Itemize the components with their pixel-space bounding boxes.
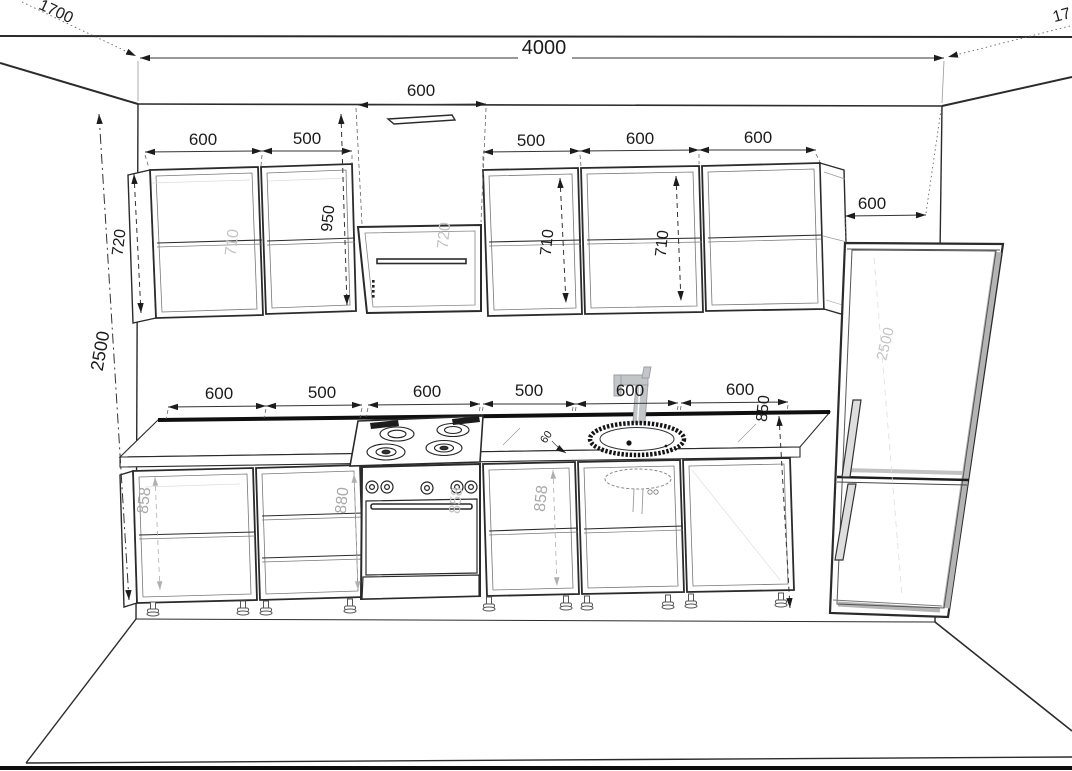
dim-label-hood-inner-ghost: 720 xyxy=(435,221,455,249)
dim-label-counter-height: 850 xyxy=(754,394,774,422)
dim-label-upper-right-inner-1: 710 xyxy=(538,228,558,256)
kitchen-elevation-drawing: 2500 xyxy=(0,0,1072,771)
hood-handle xyxy=(377,259,466,264)
dim-label-upper-right-inner-2: 710 xyxy=(653,229,673,257)
dim-label-hood-width: 600 xyxy=(407,81,435,100)
dim-label-base-inner-2: 880 xyxy=(333,486,353,514)
dim-label-upper-left-2: 500 xyxy=(293,129,321,148)
dim-label-upper-right-3: 600 xyxy=(744,128,772,147)
dim-label-base-inner-4: 858 xyxy=(532,484,552,512)
dim-label-hood-zone-height: 950 xyxy=(319,204,339,232)
dim-label-upper-right-2: 600 xyxy=(626,129,654,148)
dim-label-base-5: 600 xyxy=(616,381,644,400)
range-hood xyxy=(358,115,481,313)
dim-label-room-height: 2500 xyxy=(87,330,114,373)
dim-label-base-1: 600 xyxy=(205,384,233,403)
dim-label-upper-inner-ghost: 710 xyxy=(222,228,242,257)
dim-label-room-width: 4000 xyxy=(522,37,567,59)
dim-label-base-2: 500 xyxy=(308,383,336,402)
dim-label-upper-height: 720 xyxy=(109,228,129,257)
dim-label-depth-right: 17 xyxy=(1051,5,1072,26)
dim-label-base-inner-1: 858 xyxy=(135,486,155,514)
sink-drain xyxy=(626,440,631,445)
refrigerator xyxy=(830,243,1003,617)
dim-label-upper-left-1: 600 xyxy=(189,130,217,149)
dim-label-base-3: 600 xyxy=(413,382,441,401)
hood-duct-flange xyxy=(388,115,455,124)
dim-label-depth-left: 1700 xyxy=(36,0,76,27)
wall-cabinet-left-group xyxy=(128,164,356,323)
dim-label-base-4: 500 xyxy=(515,381,543,400)
dim-label-upper-right-1: 500 xyxy=(517,131,545,150)
dim-label-base-6: 600 xyxy=(726,380,754,399)
dim-label-fridge-width: 600 xyxy=(858,194,886,213)
dim-label-base-inner-3: 858 xyxy=(447,486,467,514)
sink xyxy=(590,423,684,455)
stove-drawer xyxy=(362,575,479,599)
